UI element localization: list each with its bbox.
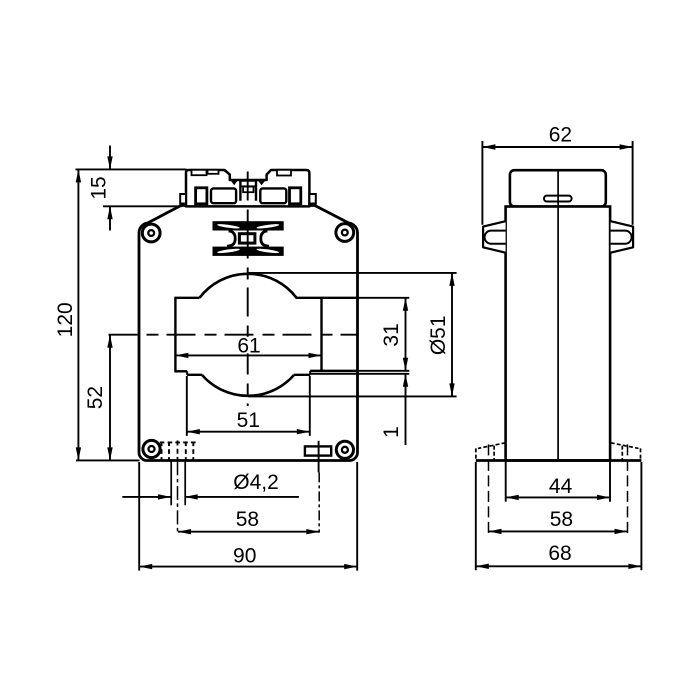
- svg-text:Ø51: Ø51: [427, 315, 450, 355]
- svg-text:90: 90: [233, 545, 256, 568]
- svg-text:Ø4,2: Ø4,2: [233, 471, 279, 494]
- svg-text:52: 52: [84, 386, 107, 409]
- svg-text:58: 58: [236, 508, 259, 531]
- svg-text:44: 44: [549, 475, 573, 498]
- svg-text:120: 120: [54, 302, 77, 337]
- svg-text:31: 31: [380, 323, 403, 346]
- svg-text:58: 58: [550, 508, 573, 531]
- svg-text:61: 61: [237, 334, 260, 357]
- svg-text:1: 1: [380, 426, 403, 438]
- svg-text:15: 15: [87, 176, 110, 199]
- svg-text:51: 51: [237, 409, 260, 432]
- svg-text:62: 62: [549, 124, 572, 147]
- svg-text:68: 68: [548, 542, 571, 565]
